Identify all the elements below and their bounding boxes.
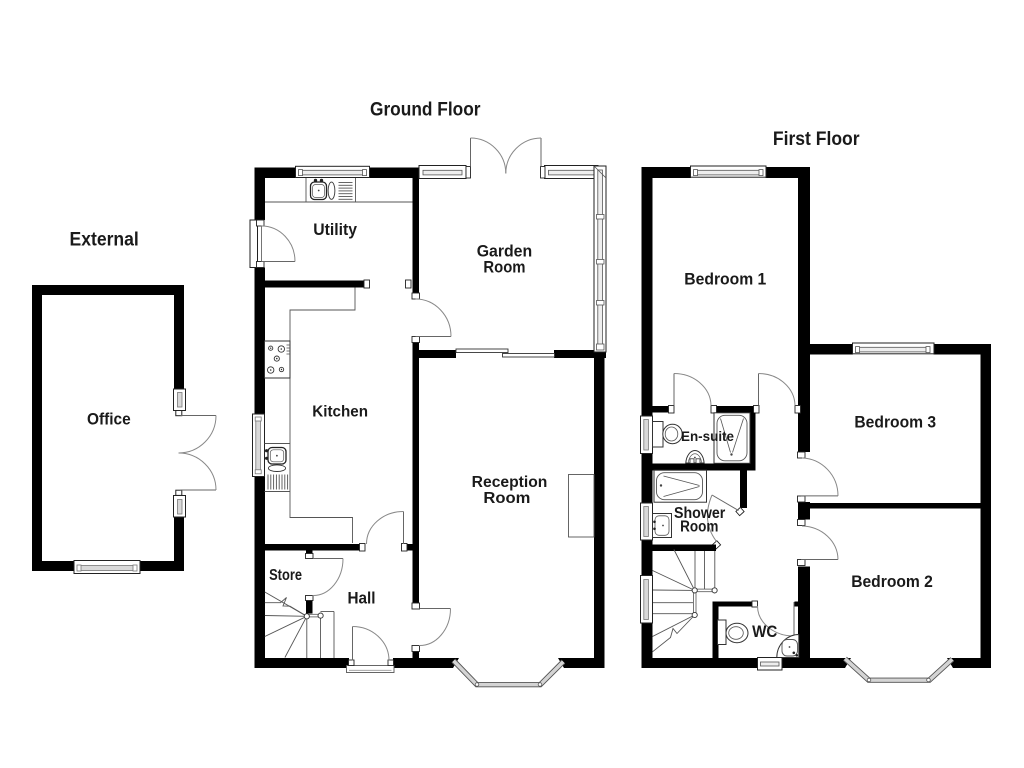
svg-text:Hall: Hall (348, 589, 376, 608)
svg-text:External: External (70, 230, 139, 251)
svg-text:Room: Room (483, 257, 525, 276)
svg-text:Bedroom 3: Bedroom 3 (854, 413, 936, 431)
svg-text:Kitchen: Kitchen (312, 404, 368, 421)
svg-text:Store: Store (269, 567, 302, 584)
svg-text:En-suite: En-suite (681, 428, 734, 444)
svg-text:First Floor: First Floor (773, 129, 860, 150)
svg-text:Reception: Reception (472, 474, 548, 491)
svg-text:Ground Floor: Ground Floor (370, 100, 481, 121)
svg-text:Office: Office (87, 411, 131, 429)
svg-text:Room: Room (483, 490, 530, 507)
svg-text:Bedroom 2: Bedroom 2 (851, 573, 933, 591)
svg-text:WC: WC (752, 622, 777, 641)
svg-text:Bedroom 1: Bedroom 1 (684, 271, 766, 289)
svg-text:Utility: Utility (313, 220, 357, 239)
svg-text:Room: Room (680, 519, 718, 536)
